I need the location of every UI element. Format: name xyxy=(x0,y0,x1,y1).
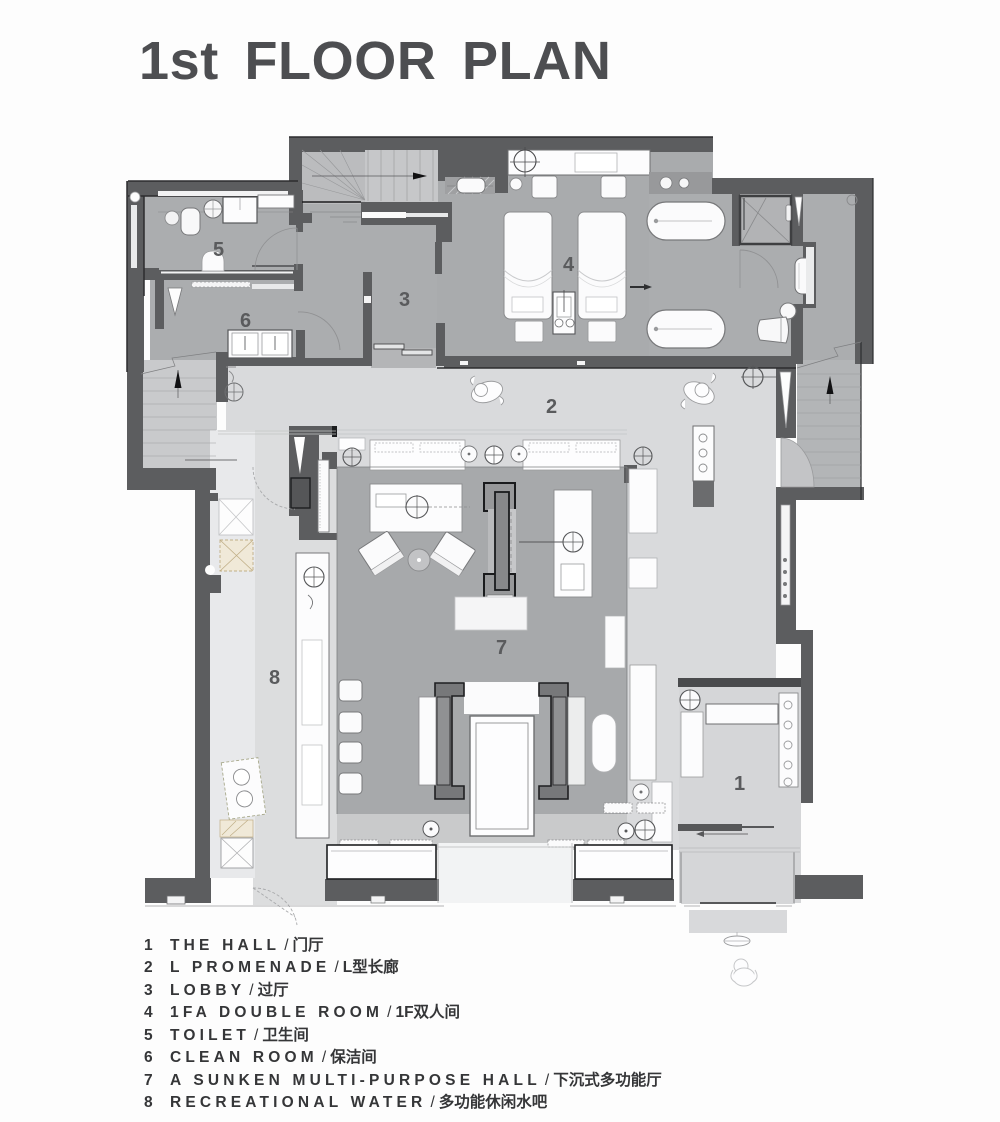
svg-text:6: 6 xyxy=(240,310,251,332)
svg-text:8RECREATIONAL WATER/多功能休闲水吧: 8RECREATIONAL WATER/多功能休闲水吧 xyxy=(144,1092,548,1111)
svg-text:6CLEAN ROOM/保洁间: 6CLEAN ROOM/保洁间 xyxy=(144,1047,377,1066)
svg-text:4: 4 xyxy=(563,254,575,276)
svg-text:5TOILET/卫生间: 5TOILET/卫生间 xyxy=(144,1025,309,1044)
svg-text:1: 1 xyxy=(734,773,745,795)
svg-text:1THE HALL/门厅: 1THE HALL/门厅 xyxy=(144,935,324,954)
svg-text:41FA DOUBLE ROOM/1F双人间: 41FA DOUBLE ROOM/1F双人间 xyxy=(144,1002,460,1021)
svg-text:5: 5 xyxy=(213,239,224,261)
svg-text:8: 8 xyxy=(269,667,280,689)
svg-text:2: 2 xyxy=(546,396,557,418)
svg-text:2L PROMENADE/L型长廊: 2L PROMENADE/L型长廊 xyxy=(144,957,399,976)
svg-text:7A SUNKEN MULTI-PURPOSE HALL/下: 7A SUNKEN MULTI-PURPOSE HALL/下沉式多功能厅 xyxy=(144,1070,662,1089)
svg-text:1st FLOOR PLAN: 1st FLOOR PLAN xyxy=(139,31,611,91)
svg-text:3LOBBY/过厅: 3LOBBY/过厅 xyxy=(144,980,289,999)
svg-text:7: 7 xyxy=(496,637,507,659)
svg-text:3: 3 xyxy=(399,289,410,311)
